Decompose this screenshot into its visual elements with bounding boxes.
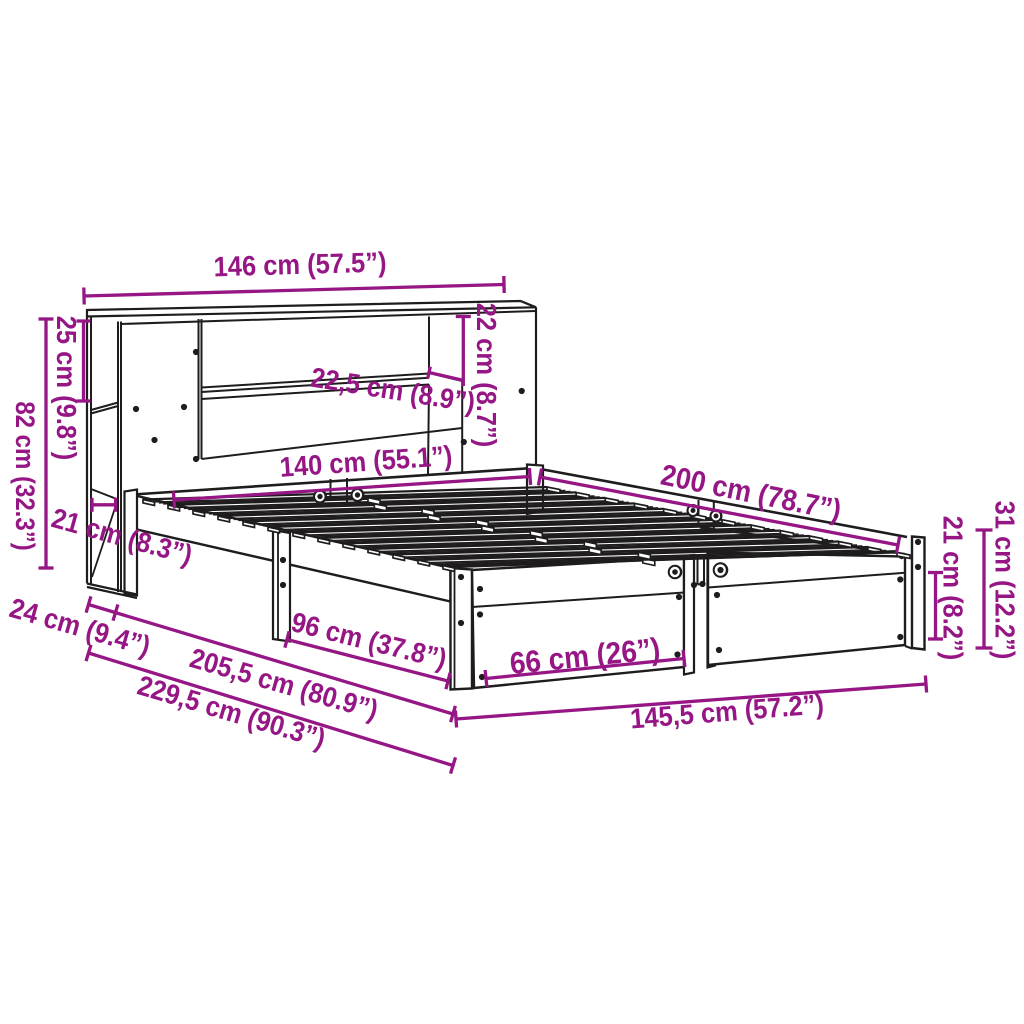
svg-text:146 cm (57.5”): 146 cm (57.5”) xyxy=(213,246,387,282)
svg-text:82 cm (32.3”): 82 cm (32.3”) xyxy=(10,401,39,550)
svg-text:31 cm (12.2”): 31 cm (12.2”) xyxy=(989,501,1020,660)
svg-text:22 cm (8.7”): 22 cm (8.7”) xyxy=(471,303,502,448)
svg-text:21 cm (8.2”): 21 cm (8.2”) xyxy=(937,516,968,661)
svg-text:25 cm (9.8”): 25 cm (9.8”) xyxy=(51,316,82,461)
